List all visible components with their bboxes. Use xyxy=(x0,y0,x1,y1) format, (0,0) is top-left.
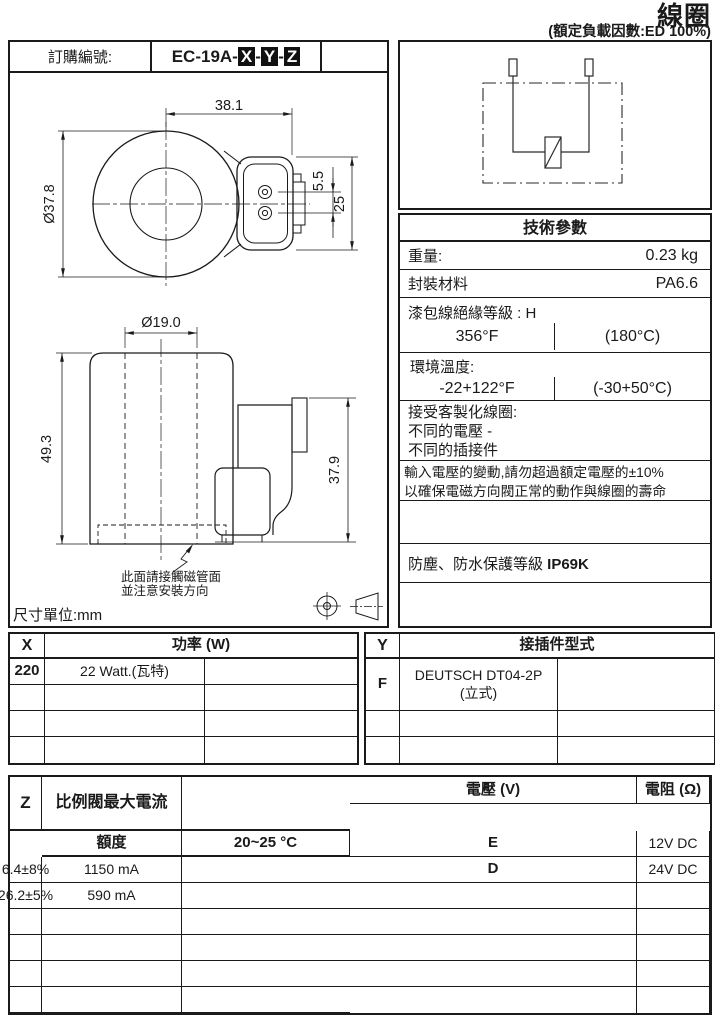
coil-side-view xyxy=(56,327,356,572)
table-cell xyxy=(205,685,357,711)
ambient-label: 環境溫度: xyxy=(400,353,710,377)
custom-coil-row: 接受客製化線圈: 不同的電壓 - 不同的插接件 xyxy=(400,401,710,461)
material-value: PA6.6 xyxy=(656,275,698,293)
magnet-face-dashed-outline xyxy=(98,525,226,544)
table-cell xyxy=(350,935,637,961)
insulation-row: 漆包線絕緣等級 : H 356°F (180°C) xyxy=(400,298,710,353)
table-cell xyxy=(10,961,42,987)
table-z-resistance-header: 電阻 (Ω) xyxy=(637,777,710,804)
voltage-note-row: 輸入電壓的變動,請勿超過額定電壓的±10% 以確保電磁方向閥正常的動作與線圈的壽… xyxy=(400,461,710,501)
protection-value: IP69K xyxy=(547,556,589,573)
table-cell xyxy=(10,987,42,1013)
table-cell xyxy=(637,935,710,961)
table-z-row0-voltage: 12V DC xyxy=(637,831,710,857)
order-code-z: Z xyxy=(284,47,300,66)
connector-type-line1: DEUTSCH DT04-2P xyxy=(415,667,543,685)
mount-note-line2: 並注意安裝方向 xyxy=(121,583,209,598)
table-cell xyxy=(182,883,350,909)
terminal-pin xyxy=(509,59,517,76)
insulation-celsius: (180°C) xyxy=(555,323,710,350)
connector-top-view xyxy=(237,157,293,250)
table-cell xyxy=(182,961,350,987)
voltage-note-line1: 輸入電壓的變動,請勿超過額定電壓的±10% xyxy=(404,463,710,482)
order-code-y: Y xyxy=(261,47,278,66)
table-y-header: 接插件型式 xyxy=(400,634,714,659)
table-y-row0-code: F xyxy=(366,659,400,711)
custom-coil-line1: 接受客製化線圈: xyxy=(408,403,710,422)
voltage-note-line2: 以確保電磁方向閥正常的動作與線圈的壽命 xyxy=(404,482,710,501)
table-cell xyxy=(10,711,45,737)
table-cell xyxy=(182,987,350,1013)
order-number-empty-cell xyxy=(322,42,387,71)
table-cell xyxy=(182,909,350,935)
table-cell xyxy=(350,883,637,909)
table-cell xyxy=(205,659,357,685)
table-y-connector: Y 接插件型式 F DEUTSCH DT04-2P (立式) xyxy=(364,632,715,765)
order-number-label: 訂購編號: xyxy=(10,42,150,71)
connector-type-line2: (立式) xyxy=(460,685,497,703)
dim-label-bore: Ø19.0 xyxy=(141,315,181,331)
table-cell xyxy=(558,659,714,711)
table-z-voltage: Z 電壓 (V) 電阻 (Ω) 比例閥最大電流 額度 20~25 °C E 12… xyxy=(8,775,712,1015)
schematic-panel xyxy=(398,40,712,210)
table-cell xyxy=(182,935,350,961)
unit-label: 尺寸單位:mm xyxy=(13,607,102,624)
table-cell xyxy=(10,935,42,961)
table-cell xyxy=(205,711,357,737)
protection-row: 防塵、防水保護等級 IP69K xyxy=(400,544,710,583)
leader-line xyxy=(173,549,189,572)
datasheet-page: { "page": { "title": "線圈", "subtitle": "… xyxy=(0,0,715,1013)
table-z-row0-code: E xyxy=(350,831,637,857)
table-cell xyxy=(366,711,400,737)
table-y-row0-value: DEUTSCH DT04-2P (立式) xyxy=(400,659,558,711)
insulation-fahrenheit: 356°F xyxy=(400,323,555,350)
connector-pin xyxy=(259,207,272,220)
table-cell xyxy=(10,685,45,711)
table-cell xyxy=(45,737,205,763)
order-number-code: EC-19A-X-Y-Z xyxy=(150,42,322,71)
insulation-label: 漆包線絕緣等級 : H xyxy=(400,298,710,323)
dim-label-pin-gap: 5.5 xyxy=(311,171,327,191)
weight-value: 0.23 kg xyxy=(646,247,698,265)
order-code-prefix: EC-19A- xyxy=(172,47,238,67)
table-z-resistance-subheader: 20~25 °C xyxy=(182,831,350,857)
table-cell xyxy=(45,711,205,737)
table-z-row0-resistance: 6.4±8% xyxy=(10,857,42,883)
table-cell xyxy=(366,737,400,763)
table-cell xyxy=(42,987,182,1013)
material-row: 封裝材料 PA6.6 xyxy=(400,270,710,298)
dim-label-width: 38.1 xyxy=(215,98,243,114)
table-z-row0-current: 1150 mA xyxy=(42,857,182,883)
drawing-panel: 訂購編號: EC-19A-X-Y-Z xyxy=(8,40,389,628)
table-cell xyxy=(637,987,710,1013)
table-cell xyxy=(558,711,714,737)
custom-coil-line3: 不同的插接件 xyxy=(408,441,710,460)
coil-top-view xyxy=(58,108,358,286)
table-cell xyxy=(350,909,637,935)
tech-params-title: 技術參數 xyxy=(400,215,710,242)
table-z-voltage-subheader: 額度 xyxy=(42,831,182,857)
table-cell xyxy=(637,909,710,935)
table-y-key-header: Y xyxy=(366,634,400,659)
empty-row xyxy=(400,501,710,544)
table-cell xyxy=(400,711,558,737)
table-cell xyxy=(182,857,350,883)
ambient-fahrenheit: -22+122°F xyxy=(400,377,555,401)
protection-label: 防塵、防水保護等級 xyxy=(408,556,547,573)
table-cell xyxy=(10,909,42,935)
table-cell xyxy=(42,935,182,961)
table-cell xyxy=(10,737,45,763)
ambient-celsius: (-30+50°C) xyxy=(555,377,710,401)
coil-technical-drawing: 38.1 Ø37.8 5.5 25 Ø19.0 49.3 37.9 此面請接觸磁… xyxy=(10,73,387,626)
coil-wiring-schematic xyxy=(400,42,710,208)
table-z-voltage-header: 電壓 (V) xyxy=(350,777,637,804)
table-cell xyxy=(350,961,637,987)
weight-row: 重量: 0.23 kg xyxy=(400,242,710,270)
table-z-current-header: 比例閥最大電流 xyxy=(42,777,182,831)
table-cell xyxy=(42,961,182,987)
table-x-key-header: X xyxy=(10,634,45,659)
table-z-row1-resistance: 26.2±5% xyxy=(10,883,42,909)
tech-params-panel: 技術參數 重量: 0.23 kg 封裝材料 PA6.6 漆包線絕緣等級 : H … xyxy=(398,213,712,628)
table-cell xyxy=(400,737,558,763)
table-z-extra-header xyxy=(182,777,350,831)
table-x-row0-value: 22 Watt.(瓦特) xyxy=(45,659,205,685)
table-cell xyxy=(558,737,714,763)
connector-pin xyxy=(259,186,272,199)
terminal-pin xyxy=(585,59,593,76)
weight-label: 重量: xyxy=(408,245,442,266)
table-cell xyxy=(637,961,710,987)
dim-label-connector-height: 25 xyxy=(332,196,348,212)
table-cell xyxy=(350,987,637,1013)
dim-label-outer-diameter: Ø37.8 xyxy=(42,184,58,224)
table-cell xyxy=(42,909,182,935)
dim-label-body-height: 49.3 xyxy=(39,435,55,463)
table-z-row1-voltage: 24V DC xyxy=(637,857,710,883)
table-cell xyxy=(637,883,710,909)
material-label: 封裝材料 xyxy=(408,273,468,294)
table-cell xyxy=(205,737,357,763)
table-z-key-header: Z xyxy=(10,777,42,831)
table-z-row1-code: D xyxy=(350,857,637,883)
ambient-row: 環境溫度: -22+122°F (-30+50°C) xyxy=(400,353,710,401)
table-cell xyxy=(45,685,205,711)
order-code-x: X xyxy=(238,47,255,66)
custom-coil-line2: 不同的電壓 - xyxy=(408,422,710,441)
dim-label-connector-side-height: 37.9 xyxy=(327,456,343,484)
projection-symbol-icon xyxy=(313,592,383,620)
table-x-power: X 功率 (W) 220 22 Watt.(瓦特) xyxy=(8,632,359,765)
mount-note-line1: 此面請接觸磁管面 xyxy=(121,569,221,584)
table-x-row0-code: 220 xyxy=(10,659,45,685)
rated-duty-note: (額定負載因數:ED 100%) xyxy=(548,20,711,41)
table-x-header: 功率 (W) xyxy=(45,634,357,659)
table-z-row1-current: 590 mA xyxy=(42,883,182,909)
order-number-row: 訂購編號: EC-19A-X-Y-Z xyxy=(10,42,387,73)
